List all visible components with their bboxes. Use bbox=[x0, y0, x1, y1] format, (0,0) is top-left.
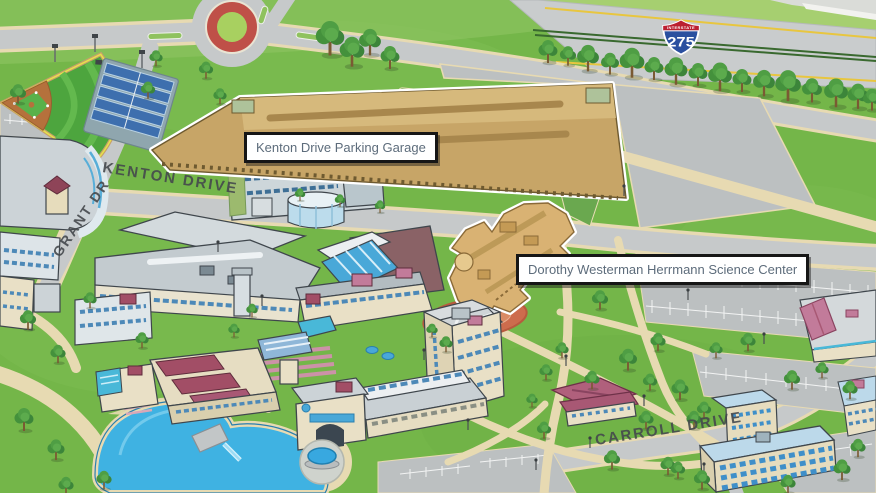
fountain bbox=[300, 440, 344, 484]
shield-number-text: 275 bbox=[667, 35, 695, 50]
campus-map: KENTON DRIVE GRANT DR CARROLL DRIVE INTE… bbox=[0, 0, 876, 493]
interstate-275-shield: INTERSTATE 275 bbox=[663, 20, 699, 54]
map-illustration: KENTON DRIVE GRANT DR CARROLL DRIVE INTE… bbox=[0, 0, 876, 493]
callout-dorothy-westerman-herrmann-science-center[interactable]: Dorothy Westerman Herrmann Science Cente… bbox=[516, 254, 809, 285]
callout-kenton-drive-parking-garage[interactable]: Kenton Drive Parking Garage bbox=[244, 132, 438, 163]
shield-banner-text: INTERSTATE bbox=[667, 26, 695, 30]
